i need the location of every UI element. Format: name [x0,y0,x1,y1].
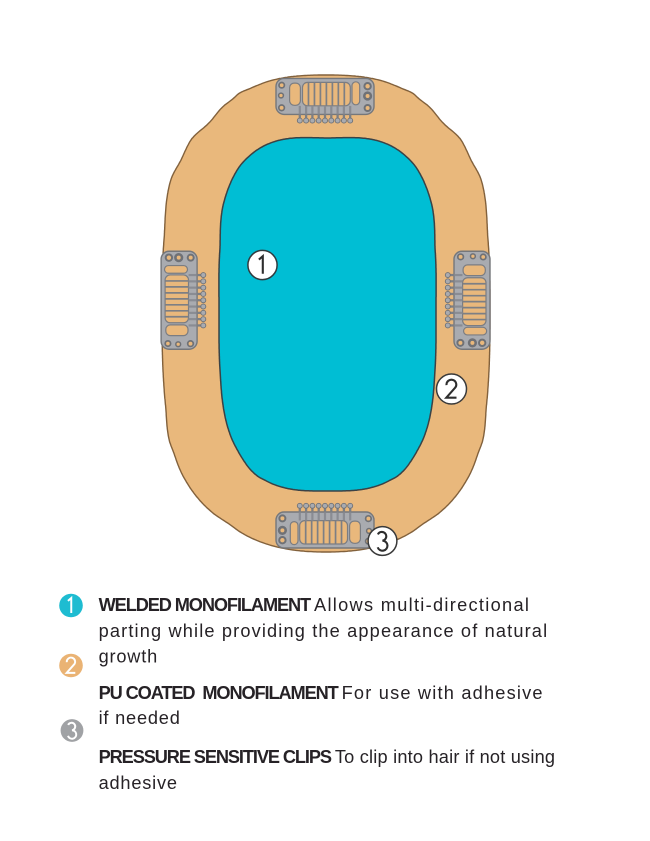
svg-text:PRESSURE SENSITIVE CLIPS To cl: PRESSURE SENSITIVE CLIPS To clip into ha… [99,747,556,767]
svg-text:adhesive: adhesive [99,773,178,793]
svg-text:growth: growth [99,646,158,666]
svg-text:PU COATED MONOFILAMENT For us: PU COATED MONOFILAMENT For use with adhe… [99,683,544,703]
svg-text:parting while providing the ap: parting while providing the appearance o… [99,621,549,641]
svg-text:WELDED MONOFILAMENT Allows mul: WELDED MONOFILAMENT Allows multi-directi… [99,595,531,615]
svg-text:if needed: if needed [99,708,181,728]
